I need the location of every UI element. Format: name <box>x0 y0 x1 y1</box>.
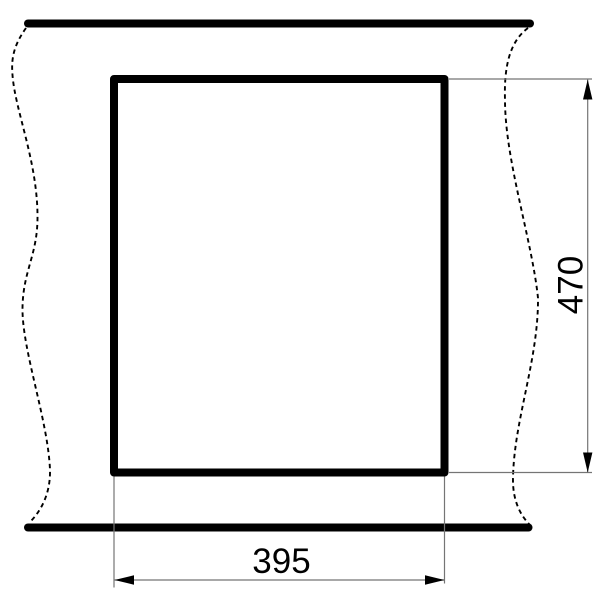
svg-text:470: 470 <box>552 256 591 314</box>
svg-text:395: 395 <box>252 542 310 581</box>
